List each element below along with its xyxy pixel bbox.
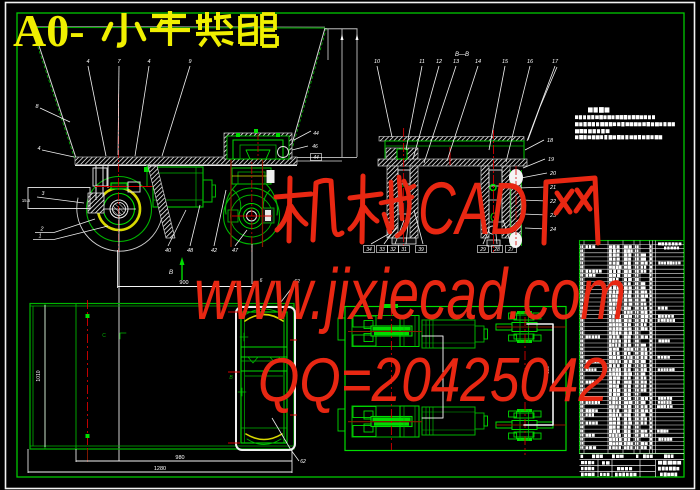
svg-text:62: 62 — [300, 459, 306, 465]
svg-text:3: 3 — [42, 191, 45, 197]
svg-text:1010: 1010 — [36, 370, 42, 381]
svg-text:20: 20 — [549, 171, 557, 177]
svg-text:13: 13 — [453, 59, 460, 65]
svg-text:4: 4 — [86, 59, 89, 65]
svg-text:16: 16 — [527, 59, 534, 65]
svg-text:32: 32 — [390, 247, 396, 253]
svg-text:11: 11 — [419, 59, 425, 65]
svg-text:10: 10 — [374, 59, 381, 65]
svg-text:A0-: A0- — [13, 5, 85, 56]
svg-text:15: 15 — [502, 59, 509, 65]
svg-text:44: 44 — [313, 155, 319, 161]
svg-text:4: 4 — [147, 59, 150, 65]
svg-text:22: 22 — [549, 199, 556, 205]
svg-text:B—B: B—B — [455, 52, 469, 58]
svg-text:48: 48 — [187, 248, 194, 254]
svg-text:31: 31 — [401, 247, 407, 253]
svg-text:CAD: CAD — [418, 167, 528, 250]
svg-text:C: C — [102, 333, 106, 339]
svg-text:B: B — [169, 269, 174, 276]
svg-text:17: 17 — [552, 59, 559, 65]
svg-text:42: 42 — [211, 248, 217, 254]
svg-text:24: 24 — [549, 227, 556, 233]
svg-text:21: 21 — [549, 185, 556, 191]
svg-text:980: 980 — [175, 455, 184, 461]
svg-text:40: 40 — [165, 248, 172, 254]
svg-text:1280: 1280 — [154, 466, 166, 472]
svg-text:19: 19 — [548, 157, 554, 163]
svg-text:9: 9 — [188, 59, 191, 65]
svg-text:44: 44 — [313, 131, 319, 137]
svg-text:47: 47 — [232, 248, 239, 254]
svg-text:15.5: 15.5 — [22, 198, 31, 203]
svg-text:33: 33 — [379, 247, 385, 253]
svg-text:900: 900 — [179, 280, 188, 286]
svg-text:www.jixiecad.com: www.jixiecad.com — [194, 255, 626, 335]
svg-text:4: 4 — [37, 146, 40, 152]
svg-text:1: 1 — [38, 234, 41, 240]
svg-text:46: 46 — [312, 144, 318, 150]
svg-text:12: 12 — [436, 59, 442, 65]
svg-text:18: 18 — [547, 138, 554, 144]
svg-text:QQ=20425042: QQ=20425042 — [258, 346, 608, 415]
svg-text:34: 34 — [366, 247, 372, 253]
svg-text:2: 2 — [39, 227, 43, 233]
svg-text:14: 14 — [475, 59, 481, 65]
